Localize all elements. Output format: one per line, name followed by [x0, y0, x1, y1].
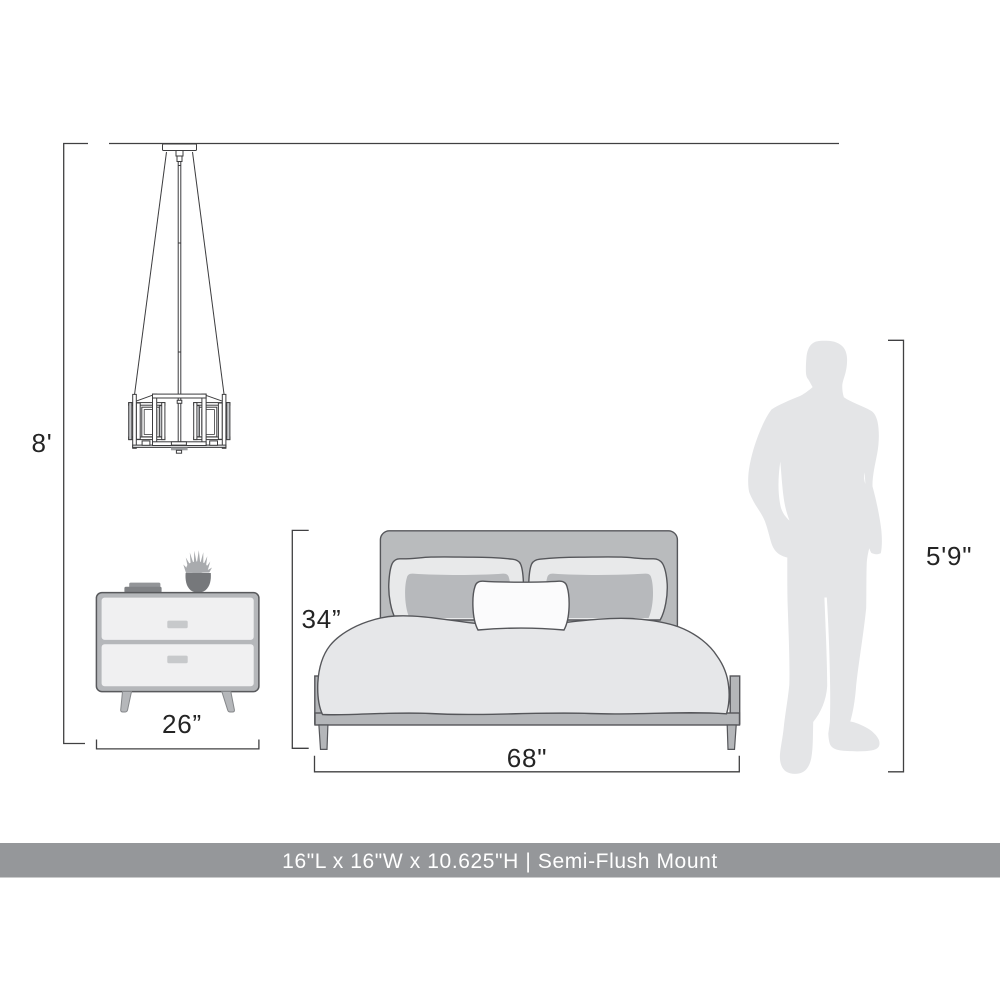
svg-text:5'9": 5'9" — [926, 541, 972, 571]
svg-text:34”: 34” — [302, 604, 342, 634]
svg-text:26”: 26” — [162, 709, 202, 739]
svg-text:8': 8' — [31, 428, 52, 458]
svg-text:16"L x 16"W x 10.625"H | Semi-: 16"L x 16"W x 10.625"H | Semi-Flush Moun… — [282, 850, 718, 873]
svg-text:68": 68" — [507, 743, 548, 773]
